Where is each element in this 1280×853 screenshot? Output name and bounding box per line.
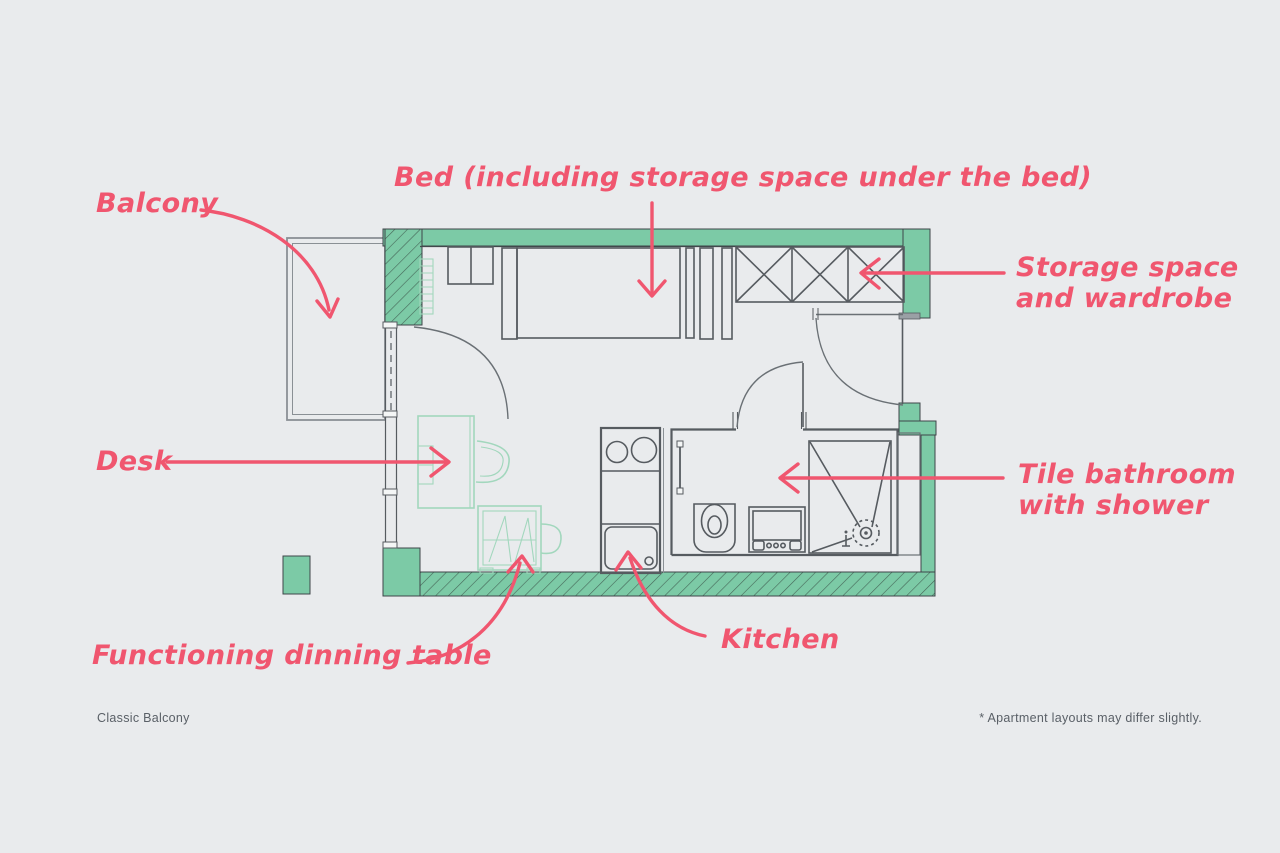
bed bbox=[448, 247, 732, 339]
bathroom-door bbox=[737, 362, 803, 427]
floor-plan-drawing bbox=[0, 0, 1280, 853]
kitchen-label: Kitchen bbox=[721, 624, 840, 655]
bed-label: Bed (including storage space under the b… bbox=[394, 162, 1092, 193]
dining-table-label: Functioning dinning table bbox=[92, 640, 492, 671]
bathroom bbox=[672, 362, 921, 555]
service-shaft bbox=[898, 433, 920, 555]
walls bbox=[283, 229, 936, 596]
hob-burner bbox=[607, 442, 628, 463]
storage-label: Storage space and wardrobe bbox=[1016, 252, 1239, 314]
balcony-label: Balcony bbox=[96, 188, 218, 219]
entrance-door bbox=[813, 308, 903, 405]
kitchen-unit bbox=[601, 428, 664, 573]
desk-arrow bbox=[167, 448, 449, 476]
washbasin-vanity bbox=[749, 507, 805, 552]
toilet bbox=[694, 504, 735, 552]
shower bbox=[809, 441, 891, 553]
balcony-outline bbox=[287, 238, 385, 420]
towel-rail bbox=[677, 441, 683, 494]
plan-variant-name: Classic Balcony bbox=[97, 711, 190, 725]
disclaimer-note: * Apartment layouts may differ slightly. bbox=[979, 711, 1202, 725]
bathroom-label: Tile bathroom with shower bbox=[1018, 459, 1236, 521]
desk-label: Desk bbox=[96, 446, 172, 477]
balcony-wall-stub bbox=[283, 556, 310, 594]
bed-arrow bbox=[639, 203, 665, 296]
floor-plan-page: Balcony Bed (including storage space und… bbox=[0, 0, 1280, 853]
storage-arrow bbox=[861, 259, 1004, 288]
hob-burner bbox=[632, 438, 657, 463]
bottom-wall-hatch bbox=[401, 572, 935, 596]
balcony-arrow bbox=[201, 210, 338, 317]
balcony-door-window bbox=[383, 322, 508, 548]
